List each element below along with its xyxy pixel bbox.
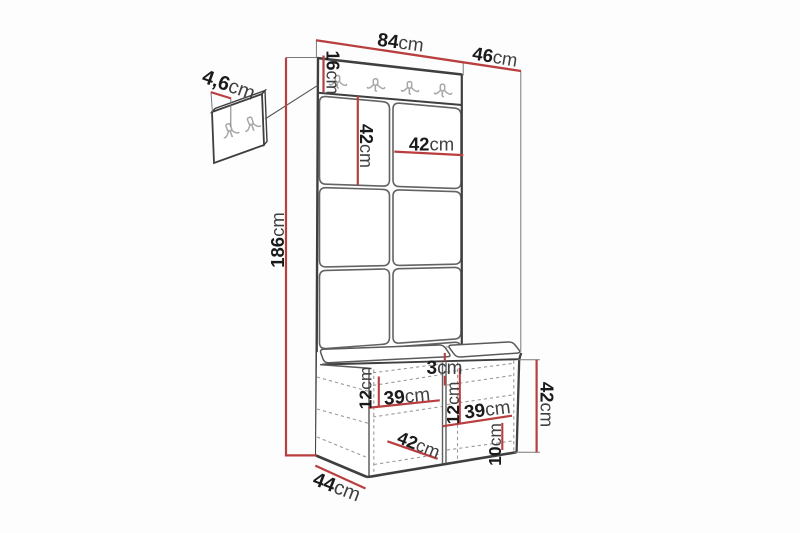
svg-text:42cm: 42cm bbox=[537, 382, 558, 427]
svg-text:12cm: 12cm bbox=[443, 382, 463, 425]
svg-text:42cm: 42cm bbox=[356, 124, 376, 168]
svg-text:39cm: 39cm bbox=[383, 384, 431, 409]
svg-text:42cm: 42cm bbox=[409, 134, 454, 155]
svg-text:186cm: 186cm bbox=[267, 212, 288, 268]
svg-text:3cm: 3cm bbox=[427, 358, 463, 379]
svg-text:16cm: 16cm bbox=[323, 50, 343, 94]
svg-text:10cm: 10cm bbox=[485, 423, 505, 466]
svg-text:12cm: 12cm bbox=[356, 367, 376, 410]
